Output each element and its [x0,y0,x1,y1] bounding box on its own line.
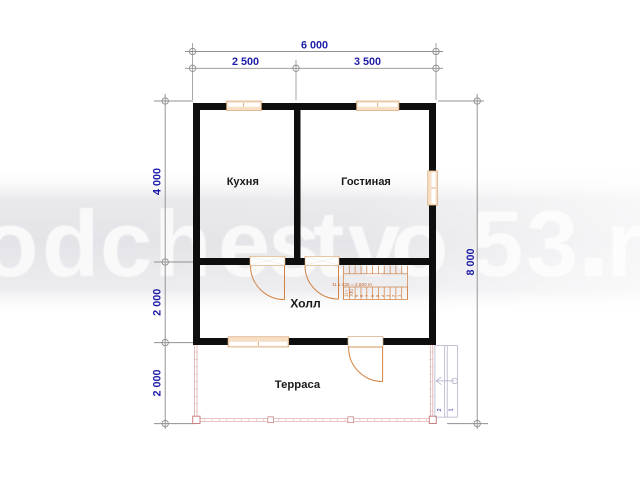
svg-text:2 000: 2 000 [152,289,164,316]
svg-text:Холл: Холл [290,297,321,311]
svg-text:10: 10 [349,292,354,297]
svg-text:2 500: 2 500 [232,56,259,68]
svg-text:2: 2 [437,408,443,411]
svg-text:11: 11 [343,292,348,297]
svg-text:6 000: 6 000 [301,40,328,52]
svg-text:Терраса: Терраса [275,379,321,391]
svg-text:8 000: 8 000 [465,248,477,275]
svg-text:3 500: 3 500 [354,56,381,68]
svg-text:2 000: 2 000 [152,369,164,396]
svg-text:Кухня: Кухня [227,176,259,188]
svg-text:1: 1 [449,408,455,411]
svg-text:Гостиная: Гостиная [341,176,391,188]
svg-text:4 000: 4 000 [152,168,164,195]
svg-text:11 x 236 = 2,600 m: 11 x 236 = 2,600 m [332,282,372,287]
